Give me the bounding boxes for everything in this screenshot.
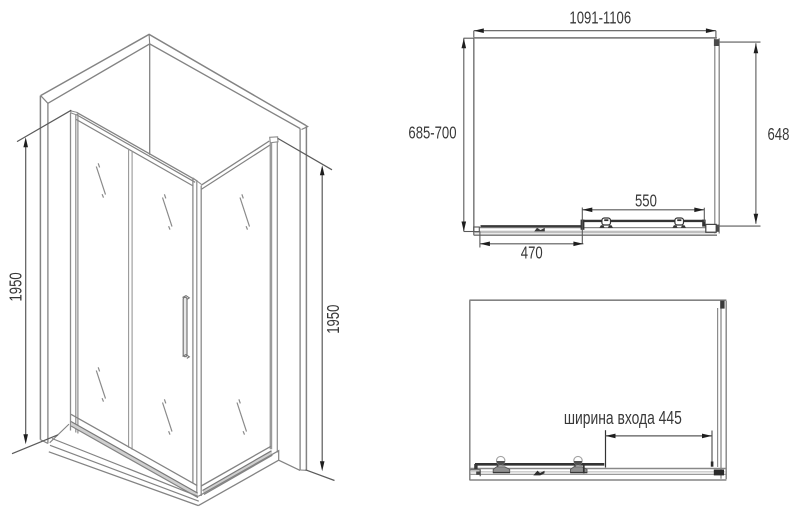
svg-text:685-700: 685-700 [408,124,456,143]
svg-text:1950: 1950 [324,305,343,334]
svg-text:ширина входа 445: ширина входа 445 [564,408,682,428]
svg-text:1091-1106: 1091-1106 [569,9,631,28]
svg-text:1950: 1950 [7,272,26,301]
svg-text:470: 470 [521,244,543,263]
svg-text:648: 648 [768,125,790,144]
svg-text:550: 550 [635,192,657,211]
